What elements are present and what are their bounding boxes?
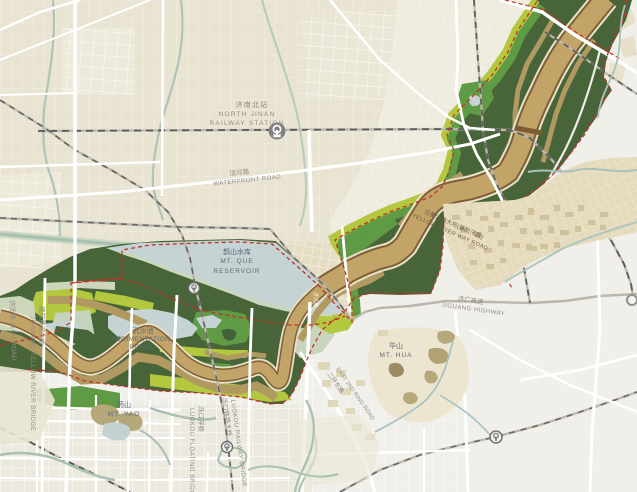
svg-text:鹊山水库: 鹊山水库 [223,247,251,256]
svg-text:JIANBANG YELLOW RIVER BRIDGE: JIANBANG YELLOW RIVER BRIDGE [29,316,35,431]
svg-text:MT. QUE: MT. QUE [220,258,253,265]
svg-text:建邦黄河大桥: 建邦黄河大桥 [38,306,47,346]
svg-text:MT. HUA: MT. HUA [380,352,413,359]
svg-text:LUOKOU FLOATING BRIDGE: LUOKOU FLOATING BRIDGE [188,408,194,492]
svg-text:RAILWAY STATION: RAILWAY STATION [210,120,285,127]
svg-text:济南北站: 济南北站 [236,100,269,109]
svg-text:华山: 华山 [389,341,403,350]
svg-text:SEDIMENTATION: SEDIMENTATION [112,336,171,343]
svg-text:NORTH JINAN: NORTH JINAN [219,111,276,118]
svg-text:沉沙池: 沉沙池 [133,326,154,335]
svg-text:济泺路: 济泺路 [312,292,319,307]
svg-text:药山: 药山 [117,400,131,409]
svg-text:MT. YAO: MT. YAO [108,411,140,418]
svg-text:泺口浮桥: 泺口浮桥 [197,406,206,433]
svg-text:RESERVOIR: RESERVOIR [213,268,260,275]
svg-text:POND: POND [130,344,153,351]
